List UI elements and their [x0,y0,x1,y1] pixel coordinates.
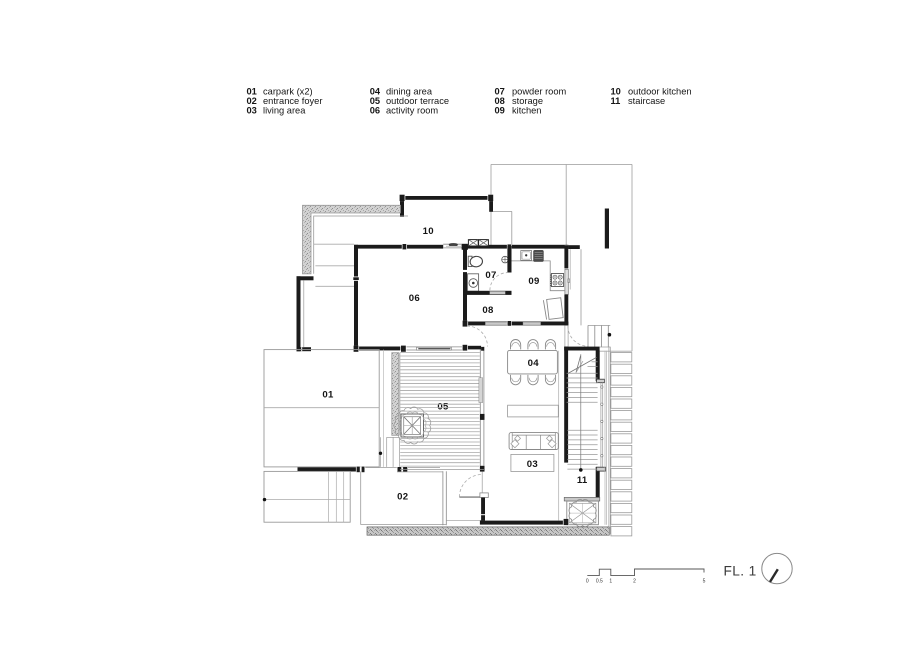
svg-text:outdoor terrace: outdoor terrace [386,96,449,106]
svg-text:06: 06 [409,293,420,304]
svg-text:06: 06 [370,106,380,116]
svg-text:powder room: powder room [512,87,567,97]
svg-text:02: 02 [397,492,408,503]
svg-text:storage: storage [512,96,543,106]
svg-text:07: 07 [495,87,505,97]
svg-text:11: 11 [577,475,588,486]
svg-text:outdoor kitchen: outdoor kitchen [628,87,692,97]
svg-text:04: 04 [528,358,540,369]
svg-text:04: 04 [370,87,381,97]
svg-text:0: 0 [586,578,589,584]
svg-text:carpark (x2): carpark (x2) [263,87,313,97]
svg-text:kitchen: kitchen [512,106,541,116]
svg-text:0.5: 0.5 [596,578,603,584]
svg-text:08: 08 [495,96,505,106]
svg-text:09: 09 [495,106,505,116]
svg-text:5: 5 [703,578,706,584]
svg-text:dining area: dining area [386,87,433,97]
svg-text:living area: living area [263,106,306,116]
svg-text:FL. 1: FL. 1 [724,564,757,579]
svg-text:1: 1 [609,578,612,584]
svg-text:08: 08 [482,305,494,316]
svg-text:03: 03 [247,106,257,116]
svg-text:01: 01 [247,87,257,97]
svg-text:activity room: activity room [386,106,438,116]
svg-text:11: 11 [611,96,621,106]
svg-text:03: 03 [527,459,538,470]
svg-text:01: 01 [322,390,334,401]
svg-text:05: 05 [370,96,380,106]
svg-text:10: 10 [611,87,621,97]
svg-text:10: 10 [423,226,434,237]
svg-text:staircase: staircase [628,96,665,106]
svg-text:07: 07 [485,270,496,281]
svg-text:09: 09 [528,276,539,287]
svg-text:2: 2 [633,578,636,584]
svg-text:02: 02 [247,96,257,106]
svg-text:entrance foyer: entrance foyer [263,96,322,106]
